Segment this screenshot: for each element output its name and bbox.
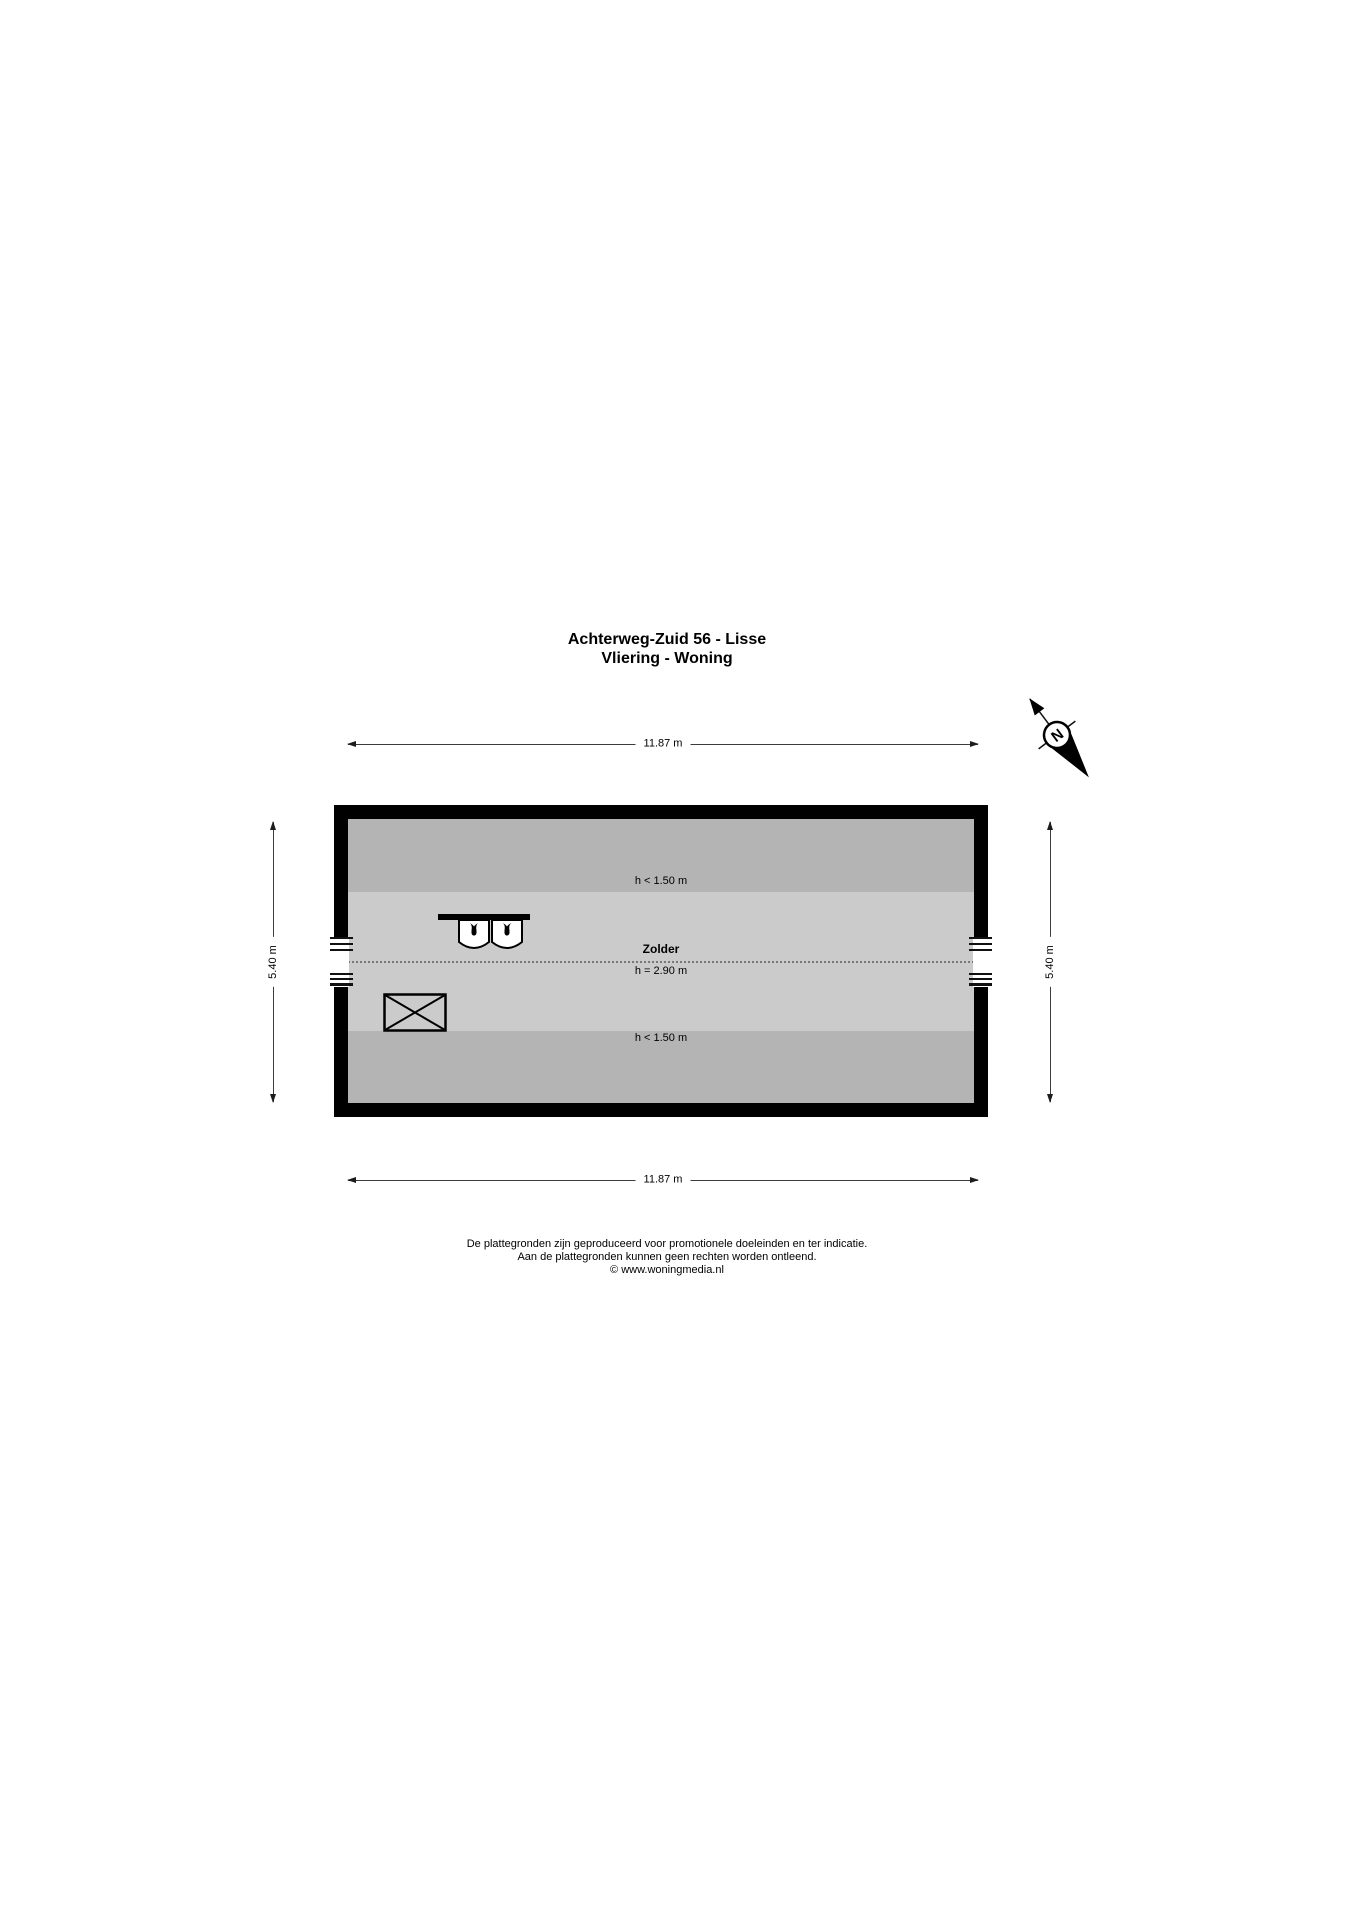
ridge-dotted-line — [348, 961, 974, 963]
compass-arrowhead — [1025, 695, 1045, 716]
arrow-left-icon — [347, 741, 356, 747]
low-height-top-label: h < 1.50 m — [348, 875, 974, 887]
wall-opening-right — [973, 937, 988, 987]
dimension-depth-left-label: 5.40 m — [267, 937, 279, 987]
title-floor: Vliering - Woning — [0, 649, 1334, 668]
footer-disclaimer: De plattegronden zijn geproduceerd voor … — [0, 1238, 1334, 1277]
page-title: Achterweg-Zuid 56 - Lisse Vliering - Won… — [0, 630, 1334, 668]
disclaimer-line-2: Aan de plattegronden kunnen geen rechten… — [0, 1251, 1334, 1264]
low-height-bottom-label: h < 1.50 m — [348, 1032, 974, 1044]
arrow-left-icon — [347, 1177, 356, 1183]
dimension-width-bottom-label: 11.87 m — [636, 1174, 691, 1186]
arrow-up-icon — [1047, 821, 1053, 830]
arrow-right-icon — [970, 1177, 979, 1183]
double-washbasin — [438, 913, 534, 959]
disclaimer-line-1: De plattegronden zijn geproduceerd voor … — [0, 1238, 1334, 1251]
arrow-down-icon — [1047, 1094, 1053, 1103]
copyright-line: © www.woningmedia.nl — [0, 1264, 1334, 1277]
dimension-depth-right-label: 5.40 m — [1044, 937, 1056, 987]
arrow-up-icon — [270, 821, 276, 830]
wall-opening-left — [334, 937, 349, 987]
floor-plan: h < 1.50 m Zolder h = 2.90 m h < 1.50 m — [334, 805, 988, 1117]
arrow-right-icon — [970, 741, 979, 747]
arrow-down-icon — [270, 1094, 276, 1103]
dimension-width-top-label: 11.87 m — [636, 738, 691, 750]
page-root: Achterweg-Zuid 56 - Lisse Vliering - Won… — [0, 0, 1358, 1920]
room-height-label: h = 2.90 m — [348, 965, 974, 977]
north-compass-icon: N — [1012, 689, 1104, 785]
void-opening — [383, 993, 447, 1032]
title-address: Achterweg-Zuid 56 - Lisse — [0, 630, 1334, 649]
attic-room: h < 1.50 m Zolder h = 2.90 m h < 1.50 m — [348, 819, 974, 1103]
